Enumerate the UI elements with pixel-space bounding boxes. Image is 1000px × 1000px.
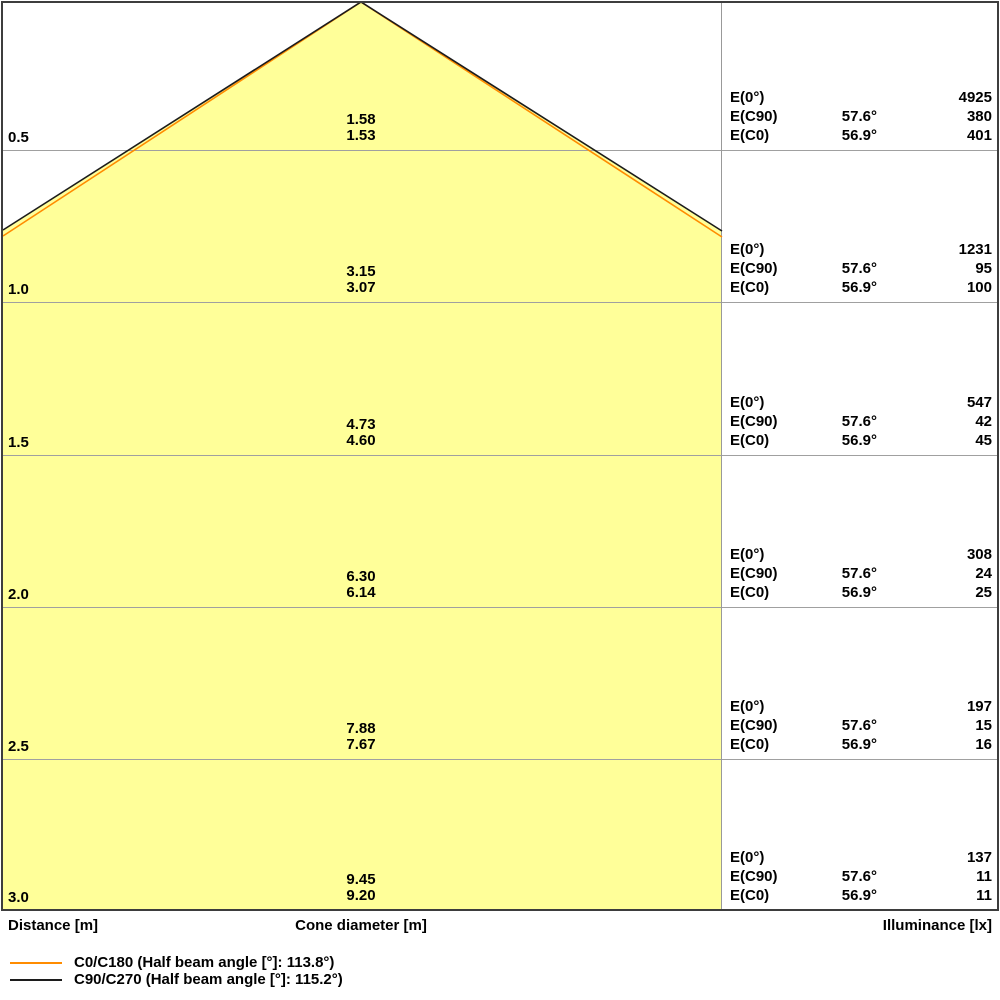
ec90-value: 42 <box>877 414 992 430</box>
table-row: E(C0) 56.9° 25 <box>730 583 992 602</box>
distance-label: 0.5 <box>8 130 29 146</box>
ec90-label: E(C90) <box>730 261 825 277</box>
distance-label: 1.5 <box>8 435 29 451</box>
x-axis-label-distance: Distance [m] <box>8 918 98 934</box>
distance-label: 2.0 <box>8 587 29 603</box>
axis-label-cone-diameter: Cone diameter [m] <box>261 918 461 934</box>
cone-diameter-c0: 6.14 <box>261 585 461 601</box>
ec90-label: E(C90) <box>730 414 825 430</box>
table-row: E(C0) 56.9° 16 <box>730 735 992 754</box>
table-row: E(0°) 197 <box>730 697 992 716</box>
cone-diameter-c90: 3.15 <box>261 264 461 280</box>
e0-label: E(0°) <box>730 90 825 106</box>
ec0-label: E(C0) <box>730 585 825 601</box>
table-row: E(0°) 4925 <box>730 88 992 107</box>
ec90-value: 95 <box>877 261 992 277</box>
e0-value: 197 <box>877 699 992 715</box>
c90-line-swatch-icon <box>10 979 62 981</box>
ec90-angle: 57.6° <box>825 869 877 885</box>
ec90-label: E(C90) <box>730 566 825 582</box>
table-row: E(C0) 56.9° 45 <box>730 431 992 450</box>
table-row: E(0°) 137 <box>730 848 992 867</box>
illuminance-table-cell: E(0°) 547 E(C90) 57.6° 42 E(C0) 56.9° 45 <box>730 393 992 450</box>
e0-label: E(0°) <box>730 395 825 411</box>
ec90-value: 15 <box>877 718 992 734</box>
ec90-value: 380 <box>877 109 992 125</box>
e0-label: E(0°) <box>730 547 825 563</box>
ec90-angle: 57.6° <box>825 718 877 734</box>
ec0-angle: 56.9° <box>825 585 877 601</box>
ec0-angle: 56.9° <box>825 128 877 144</box>
table-row: E(C90) 57.6° 11 <box>730 867 992 886</box>
e0-label: E(0°) <box>730 242 825 258</box>
ec90-angle: 57.6° <box>825 109 877 125</box>
ec0-label: E(C0) <box>730 433 825 449</box>
ec0-angle: 56.9° <box>825 737 877 753</box>
table-row: E(C0) 56.9° 11 <box>730 886 992 905</box>
ec0-value: 11 <box>877 888 992 904</box>
table-row: E(C90) 57.6° 15 <box>730 716 992 735</box>
cone-diameter-c90: 6.30 <box>261 569 461 585</box>
distance-label: 3.0 <box>8 890 29 906</box>
cone-diameter-c0: 3.07 <box>261 280 461 296</box>
legend: C0/C180 (Half beam angle [°]: 113.8°) C9… <box>10 954 343 988</box>
e0-label: E(0°) <box>730 850 825 866</box>
cone-diameter-values: 1.58 1.53 <box>261 112 461 144</box>
distance-label: 2.5 <box>8 739 29 755</box>
cone-diameter-c90: 7.88 <box>261 721 461 737</box>
cone-diameter-c0: 9.20 <box>261 888 461 904</box>
legend-label-c0: C0/C180 (Half beam angle [°]: 113.8°) <box>74 954 334 971</box>
ec0-value: 25 <box>877 585 992 601</box>
light-cone-diagram: 0.5 1.58 1.53 E(0°) 4925 E(C90) 57.6° 38… <box>0 0 1000 1000</box>
illuminance-table-cell: E(0°) 4925 E(C90) 57.6° 380 E(C0) 56.9° … <box>730 88 992 145</box>
table-row: E(C90) 57.6° 95 <box>730 259 992 278</box>
ec90-angle: 57.6° <box>825 414 877 430</box>
ec90-label: E(C90) <box>730 109 825 125</box>
cone-diameter-values: 6.30 6.14 <box>261 569 461 601</box>
ec0-label: E(C0) <box>730 280 825 296</box>
illuminance-table-cell: E(0°) 197 E(C90) 57.6° 15 E(C0) 56.9° 16 <box>730 697 992 754</box>
ec0-angle: 56.9° <box>825 280 877 296</box>
e0-label: E(0°) <box>730 699 825 715</box>
cone-diameter-values: 4.73 4.60 <box>261 417 461 449</box>
table-row: E(C0) 56.9° 100 <box>730 278 992 297</box>
ec0-value: 16 <box>877 737 992 753</box>
cone-diameter-values: 3.15 3.07 <box>261 264 461 296</box>
ec90-label: E(C90) <box>730 718 825 734</box>
cone-diameter-c0: 1.53 <box>261 128 461 144</box>
ec0-angle: 56.9° <box>825 888 877 904</box>
c0-line-swatch-icon <box>10 962 62 964</box>
ec90-value: 24 <box>877 566 992 582</box>
ec0-label: E(C0) <box>730 128 825 144</box>
ec90-angle: 57.6° <box>825 566 877 582</box>
illuminance-table-cell: E(0°) 308 E(C90) 57.6° 24 E(C0) 56.9° 25 <box>730 545 992 602</box>
ec0-value: 45 <box>877 433 992 449</box>
cone-diameter-values: 7.88 7.67 <box>261 721 461 753</box>
table-row: E(0°) 308 <box>730 545 992 564</box>
table-row: E(C90) 57.6° 24 <box>730 564 992 583</box>
cone-diameter-values: 9.45 9.20 <box>261 872 461 904</box>
ec0-angle: 56.9° <box>825 433 877 449</box>
table-row: E(C90) 57.6° 42 <box>730 412 992 431</box>
ec0-value: 100 <box>877 280 992 296</box>
ec0-label: E(C0) <box>730 737 825 753</box>
ec0-label: E(C0) <box>730 888 825 904</box>
legend-item-c0: C0/C180 (Half beam angle [°]: 113.8°) <box>10 954 343 971</box>
table-row: E(0°) 547 <box>730 393 992 412</box>
e0-value: 137 <box>877 850 992 866</box>
legend-label-c90: C90/C270 (Half beam angle [°]: 115.2°) <box>74 971 343 988</box>
e0-value: 1231 <box>877 242 992 258</box>
ec90-angle: 57.6° <box>825 261 877 277</box>
ec0-value: 401 <box>877 128 992 144</box>
table-row: E(0°) 1231 <box>730 240 992 259</box>
e0-value: 4925 <box>877 90 992 106</box>
cone-diameter-c0: 7.67 <box>261 737 461 753</box>
table-row: E(C90) 57.6° 380 <box>730 107 992 126</box>
e0-value: 547 <box>877 395 992 411</box>
illuminance-table-cell: E(0°) 1231 E(C90) 57.6° 95 E(C0) 56.9° 1… <box>730 240 992 297</box>
cone-diameter-c90: 1.58 <box>261 112 461 128</box>
e0-value: 308 <box>877 547 992 563</box>
cone-diameter-c90: 9.45 <box>261 872 461 888</box>
distance-label: 1.0 <box>8 282 29 298</box>
illuminance-table-cell: E(0°) 137 E(C90) 57.6° 11 E(C0) 56.9° 11 <box>730 848 992 905</box>
axis-label-illuminance: Illuminance [lx] <box>883 918 992 934</box>
ec90-value: 11 <box>877 869 992 885</box>
legend-item-c90: C90/C270 (Half beam angle [°]: 115.2°) <box>10 971 343 988</box>
table-row: E(C0) 56.9° 401 <box>730 126 992 145</box>
ec90-label: E(C90) <box>730 869 825 885</box>
cone-diameter-c0: 4.60 <box>261 433 461 449</box>
cone-diameter-c90: 4.73 <box>261 417 461 433</box>
